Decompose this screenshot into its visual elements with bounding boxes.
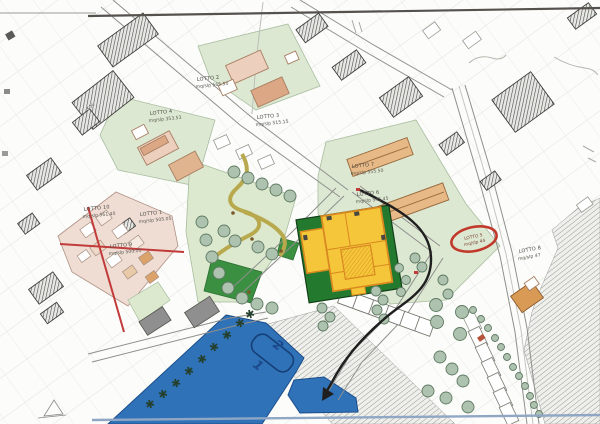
yellow-building-courtyard	[341, 245, 375, 279]
site-plan-scan: LOTTO 2 mq/slp 565.50 LOTTO 4 mq/slp 353…	[0, 0, 600, 424]
green-lot	[296, 205, 402, 303]
site-plan-svg: LOTTO 2 mq/slp 565.50 LOTTO 4 mq/slp 353…	[0, 0, 600, 424]
